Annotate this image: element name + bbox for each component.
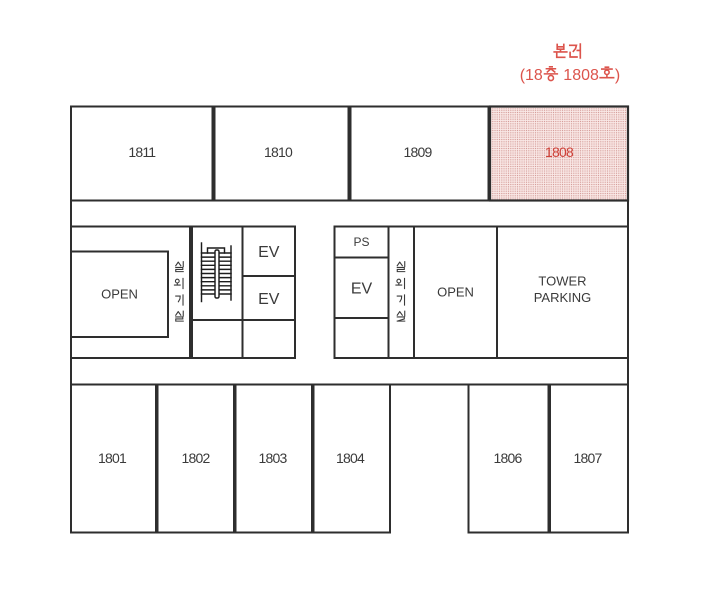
svg-text:1810: 1810 <box>264 144 293 160</box>
svg-text:1808: 1808 <box>563 67 599 84</box>
svg-text:1808: 1808 <box>545 144 574 160</box>
svg-text:1804: 1804 <box>336 450 365 466</box>
svg-text:(18: (18 <box>520 67 543 84</box>
svg-text:1801: 1801 <box>98 450 127 466</box>
svg-text:): ) <box>615 67 620 84</box>
svg-text:1809: 1809 <box>404 144 433 160</box>
svg-text:1811: 1811 <box>128 144 156 160</box>
svg-text:1803: 1803 <box>259 450 288 466</box>
svg-text:TOWER: TOWER <box>538 274 586 289</box>
svg-text:PS: PS <box>353 235 369 249</box>
svg-text:1807: 1807 <box>574 450 603 466</box>
svg-text:EV: EV <box>258 291 280 308</box>
svg-text:1802: 1802 <box>182 450 211 466</box>
svg-text:PARKING: PARKING <box>534 290 592 305</box>
svg-text:EV: EV <box>258 244 280 261</box>
svg-text:EV: EV <box>351 281 373 298</box>
svg-text:OPEN: OPEN <box>101 287 138 302</box>
svg-text:OPEN: OPEN <box>437 285 474 300</box>
svg-text:1806: 1806 <box>494 450 523 466</box>
